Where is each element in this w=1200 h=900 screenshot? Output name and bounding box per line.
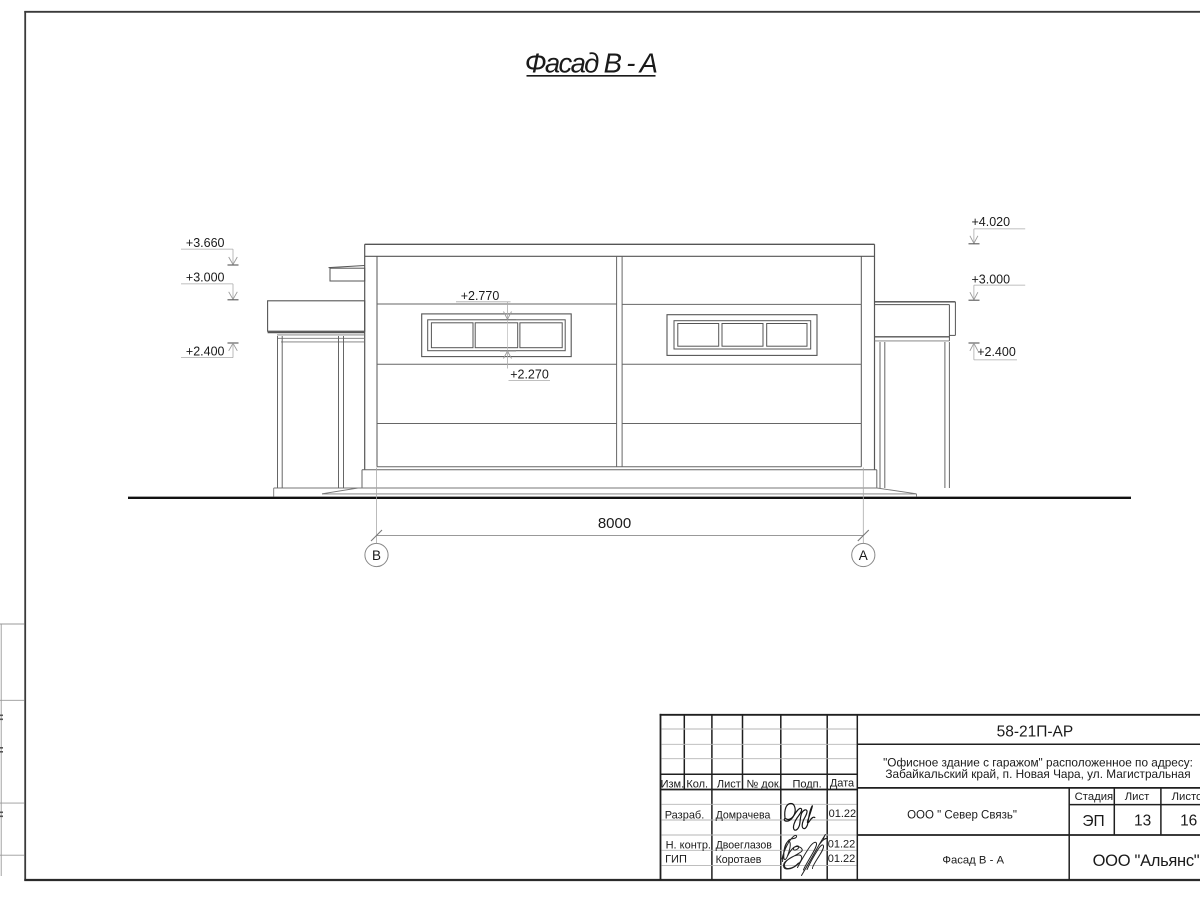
svg-text:В: В [372,548,381,563]
svg-text:А: А [859,548,868,563]
svg-text:+2.770: +2.770 [461,289,500,303]
svg-text:+2.270: +2.270 [510,368,549,382]
svg-text:ООО "Альянс": ООО "Альянс" [1093,852,1200,870]
svg-text:8000: 8000 [598,515,631,532]
svg-text:Н. контр.: Н. контр. [666,840,711,852]
svg-text:Стадия: Стадия [1075,791,1114,803]
svg-text:Кол.: Кол. [686,779,708,791]
svg-text:01.22: 01.22 [828,838,856,850]
svg-text:Фасад В - А: Фасад В - А [942,854,1004,866]
svg-text:13: 13 [1134,812,1151,829]
svg-text:Листов: Листов [1172,791,1200,803]
svg-text:Разраб.: Разраб. [665,809,705,821]
svg-text:ГИП: ГИП [665,854,687,866]
svg-text:Подп.: Подп. [792,779,821,791]
svg-text:+3.660: +3.660 [186,236,225,250]
svg-text:Лист: Лист [717,779,741,791]
svg-text:Домрачева: Домрачева [716,809,771,821]
svg-text:Фасад В - А: Фасад В - А [525,48,657,79]
svg-text:+2.400: +2.400 [186,344,225,358]
svg-text:Двоеглазов: Двоеглазов [716,839,773,851]
svg-text:Дата: Дата [830,778,855,790]
svg-text:ЭП: ЭП [1082,813,1104,830]
svg-text:Изм.: Изм. [661,779,685,791]
svg-text:+2.400: +2.400 [977,345,1016,359]
svg-text:01.22: 01.22 [828,853,856,865]
svg-text:№ док.: № док. [746,779,781,791]
svg-text:+4.020: +4.020 [972,215,1011,229]
svg-text:01.22: 01.22 [829,808,857,820]
svg-text:Лист: Лист [1125,791,1150,803]
svg-text:+3.000: +3.000 [186,271,225,285]
svg-text:Забайкальский край, п. Новая Ч: Забайкальский край, п. Новая Чара, ул. М… [885,767,1190,781]
svg-text:16: 16 [1180,812,1197,829]
svg-text:+3.000: +3.000 [972,273,1011,287]
svg-text:ООО " Север Связь": ООО " Север Связь" [907,809,1017,821]
svg-text:58-21П-АР: 58-21П-АР [997,724,1074,741]
svg-text:Коротаев: Коротаев [716,854,762,866]
